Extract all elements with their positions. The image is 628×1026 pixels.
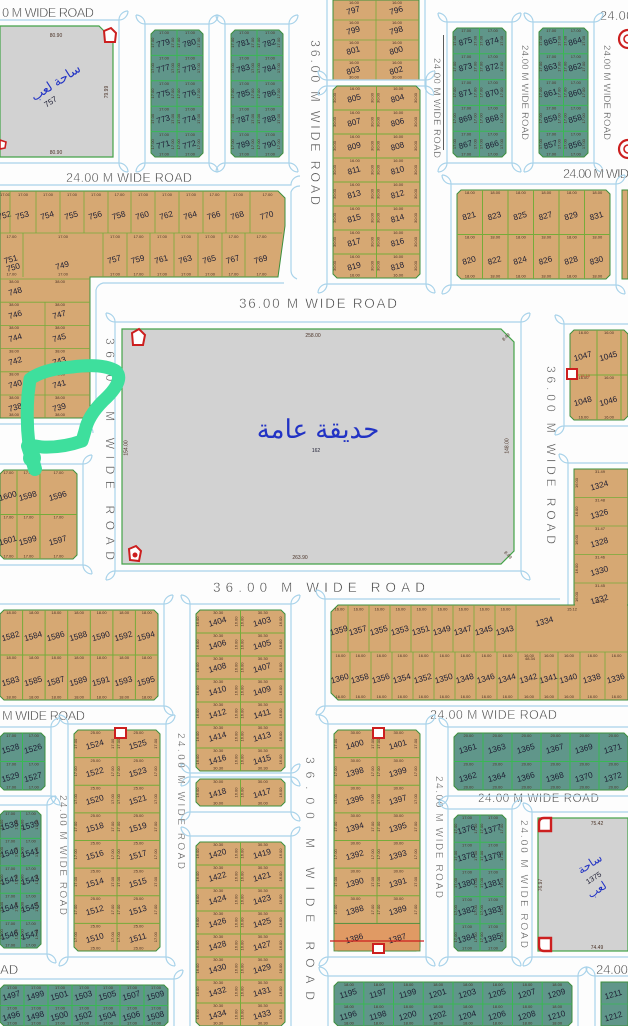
svg-text:17.00: 17.00 [26,839,37,844]
svg-text:17.00: 17.00 [185,132,196,137]
svg-text:20.00: 20.00 [492,733,503,738]
svg-text:17.00: 17.00 [239,106,250,111]
svg-text:17.00: 17.00 [239,132,250,137]
svg-text:17.00: 17.00 [265,152,276,157]
svg-text:16.00: 16.00 [574,534,579,545]
svg-text:25.00: 25.00 [133,786,144,791]
svg-text:17.00: 17.00 [31,985,42,990]
svg-text:17.00: 17.00 [488,28,499,33]
svg-text:18.00: 18.00 [374,1021,385,1026]
svg-text:30.00: 30.00 [393,896,404,901]
svg-text:16.00: 16.00 [195,963,200,974]
svg-text:18.00: 18.00 [516,274,527,279]
svg-text:18.00: 18.00 [516,235,527,240]
svg-text:17.00: 17.00 [557,138,562,149]
svg-text:16.00: 16.00 [350,110,361,115]
svg-text:30.00: 30.00 [376,212,381,223]
svg-text:17.00: 17.00 [462,815,473,820]
svg-text:16.00: 16.00 [350,158,361,163]
svg-text:30.30: 30.30 [258,656,269,661]
svg-text:17.00: 17.00 [0,846,4,857]
svg-text:17.00: 17.00 [150,88,155,99]
svg-text:17.00: 17.00 [196,139,201,150]
svg-text:17.00: 17.00 [153,849,158,860]
svg-text:30.30: 30.30 [213,679,224,684]
svg-text:17.00: 17.00 [73,904,78,915]
svg-text:17.00: 17.00 [370,821,375,832]
svg-text:17.00: 17.00 [6,733,17,738]
svg-text:18.00: 18.00 [433,1021,444,1026]
svg-text:18.00: 18.00 [493,1021,504,1026]
svg-text:17.00: 17.00 [256,234,267,239]
svg-text:16.00: 16.00 [240,986,245,997]
svg-text:17.00: 17.00 [116,931,121,942]
svg-text:17.00: 17.00 [170,88,175,99]
svg-text:17.00: 17.00 [488,131,499,136]
svg-text:17.00: 17.00 [546,80,557,85]
svg-text:16.00: 16.00 [240,940,245,951]
svg-text:17.00: 17.00 [185,106,196,111]
svg-text:17.00: 17.00 [461,106,472,111]
svg-text:30.30: 30.30 [213,842,224,847]
svg-text:17.00: 17.00 [153,821,158,832]
svg-text:16.00: 16.00 [524,694,535,699]
svg-text:17.00: 17.00 [488,815,499,820]
svg-text:17.00: 17.00 [185,81,196,86]
svg-text:17.00: 17.00 [546,106,557,111]
svg-text:20.00: 20.00 [579,762,590,767]
svg-text:30.00: 30.00 [413,116,418,127]
svg-text:30.30: 30.30 [258,842,269,847]
svg-text:25.00: 25.00 [90,946,101,951]
svg-text:16.00: 16.00 [349,60,360,65]
svg-text:17.00: 17.00 [581,35,586,46]
svg-text:17.00: 17.00 [473,61,478,72]
svg-text:17.00: 17.00 [153,931,158,942]
svg-text:17.00: 17.00 [499,138,504,149]
svg-text:20.00: 20.00 [579,785,590,790]
svg-text:30.30: 30.30 [258,911,269,916]
svg-text:18.00: 18.00 [522,1021,533,1026]
svg-text:25.00: 25.00 [133,813,144,818]
svg-text:17.00: 17.00 [34,929,39,940]
svg-text:17.00: 17.00 [14,874,19,885]
svg-text:17.00: 17.00 [453,877,458,888]
svg-text:17.00: 17.00 [376,876,381,887]
svg-text:17.00: 17.00 [176,113,181,124]
svg-text:30.30: 30.30 [258,766,269,771]
svg-text:17.00: 17.00 [159,152,170,157]
svg-text:16.00: 16.00 [335,653,346,658]
svg-text:20.00: 20.00 [608,762,619,767]
svg-text:18.00: 18.00 [493,982,504,987]
svg-text:17.00: 17.00 [67,192,78,197]
svg-text:30.30: 30.30 [258,980,269,985]
svg-text:16.00: 16.00 [481,694,492,699]
svg-text:17.00: 17.00 [563,35,568,46]
svg-text:20.00: 20.00 [579,733,590,738]
svg-text:17.00: 17.00 [150,113,155,124]
svg-text:17.00: 17.00 [333,738,338,749]
svg-text:17.00: 17.00 [262,192,273,197]
svg-text:25.00: 25.00 [133,896,144,901]
svg-text:18.00: 18.00 [552,1021,563,1026]
svg-text:17.00: 17.00 [376,904,381,915]
svg-text:17.00: 17.00 [452,138,457,149]
svg-text:17.00: 17.00 [479,904,484,915]
svg-text:16.00: 16.00 [564,694,575,699]
svg-text:17.00: 17.00 [14,819,19,830]
svg-text:24.00 M WIDE ROAD: 24.00 M WIDE ROAD [430,708,557,722]
svg-text:17.00: 17.00 [488,842,499,847]
svg-text:17.00: 17.00 [453,823,458,834]
svg-text:17.00: 17.00 [0,901,4,912]
svg-text:25.00: 25.00 [90,786,101,791]
svg-text:16.00: 16.00 [355,653,366,658]
svg-text:17.00: 17.00 [250,139,255,150]
svg-text:17.00: 17.00 [239,81,250,86]
svg-text:17.00: 17.00 [110,849,115,860]
svg-text:17.00: 17.00 [376,738,381,749]
svg-text:38.00: 38.00 [9,412,20,417]
svg-text:30.30: 30.30 [213,911,224,916]
svg-text:17.00: 17.00 [413,849,418,860]
svg-text:30.30: 30.30 [258,1003,269,1008]
svg-text:17.00: 17.00 [110,904,115,915]
svg-text:17.00: 17.00 [157,272,168,277]
svg-text:17.00: 17.00 [256,113,261,124]
svg-text:30.00: 30.00 [393,758,404,763]
svg-text:38.00: 38.00 [9,395,20,400]
svg-text:17.00: 17.00 [150,62,155,73]
svg-text:17.00: 17.00 [20,929,25,940]
svg-text:18.00: 18.00 [552,982,563,987]
svg-text:17.00: 17.00 [185,152,196,157]
svg-text:17.00: 17.00 [265,30,276,35]
svg-text:25.00: 25.00 [133,730,144,735]
svg-text:20.00: 20.00 [608,733,619,738]
svg-text:17.00: 17.00 [546,28,557,33]
svg-text:17.00: 17.00 [31,1021,42,1026]
svg-text:17.00: 17.00 [461,28,472,33]
svg-text:30.00: 30.00 [413,164,418,175]
svg-text:17.00: 17.00 [5,811,16,816]
svg-text:30.30: 30.30 [258,679,269,684]
svg-text:17.00: 17.00 [73,793,78,804]
svg-text:17.00: 17.00 [461,131,472,136]
svg-text:17.00: 17.00 [571,54,582,59]
svg-text:17.00: 17.00 [116,904,121,915]
svg-text:16.00: 16.00 [278,731,283,742]
svg-text:17.00: 17.00 [73,876,78,887]
svg-text:17.00: 17.00 [453,850,458,861]
svg-text:17.00: 17.00 [3,470,14,475]
svg-text:17.00: 17.00 [170,139,175,150]
svg-text:17.00: 17.00 [176,139,181,150]
svg-text:16.00: 16.00 [240,708,245,719]
svg-text:17.00: 17.00 [153,766,158,777]
svg-text:18.00: 18.00 [51,695,62,700]
svg-text:20.00: 20.00 [463,762,474,767]
svg-text:17.00: 17.00 [488,897,499,902]
svg-text:17.00: 17.00 [563,113,568,124]
svg-text:18.00: 18.00 [592,190,603,195]
svg-text:148.00: 148.00 [505,438,511,454]
svg-text:18.00: 18.00 [51,610,62,615]
svg-text:30.00: 30.00 [350,813,361,818]
svg-text:16.00: 16.00 [350,273,361,278]
svg-text:18.00: 18.00 [344,1021,355,1026]
svg-text:16.00: 16.00 [397,694,408,699]
svg-text:17.00: 17.00 [196,113,201,124]
svg-text:17.00: 17.00 [546,152,557,157]
svg-text:16.00: 16.00 [195,754,200,765]
svg-text:16.00: 16.00 [278,986,283,997]
svg-text:18.00: 18.00 [465,190,476,195]
svg-text:30.00: 30.00 [332,188,337,199]
svg-text:16.00: 16.00 [392,40,403,45]
svg-text:17.00: 17.00 [7,1021,18,1026]
svg-text:30.00: 30.00 [393,868,404,873]
svg-text:17.00: 17.00 [452,87,457,98]
svg-text:17.00: 17.00 [170,113,175,124]
svg-text:16.00: 16.00 [439,694,450,699]
svg-text:17.00: 17.00 [157,234,168,239]
svg-text:17.00: 17.00 [162,192,173,197]
svg-text:17.00: 17.00 [73,821,78,832]
svg-text:30.00: 30.00 [332,140,337,151]
svg-text:16.00: 16.00 [604,330,615,335]
svg-text:16.00: 16.00 [460,653,471,658]
svg-text:18.00: 18.00 [142,695,153,700]
svg-text:16.00: 16.00 [240,616,245,627]
svg-text:30.30: 30.30 [213,633,224,638]
svg-text:17.00: 17.00 [250,88,255,99]
svg-text:17.00: 17.00 [185,30,196,35]
svg-text:17.00: 17.00 [20,846,25,857]
svg-text:17.00: 17.00 [413,738,418,749]
svg-text:17.00: 17.00 [452,113,457,124]
svg-text:17.00: 17.00 [376,793,381,804]
svg-text:16.00: 16.00 [234,894,239,905]
svg-text:20.00: 20.00 [463,733,474,738]
svg-text:17.00: 17.00 [479,823,484,834]
svg-text:17.00: 17.00 [110,272,121,277]
svg-text:36.00 M WIDE ROAD: 36.00 M WIDE ROAD [308,40,322,205]
svg-text:16.00: 16.00 [392,0,403,5]
svg-text:18.00: 18.00 [119,655,130,660]
svg-text:20.00: 20.00 [521,733,532,738]
svg-text:16.00: 16.00 [278,848,283,859]
svg-text:18.00: 18.00 [433,1004,444,1009]
svg-text:38.00: 38.00 [9,372,20,377]
svg-text:17.00: 17.00 [376,821,381,832]
svg-text:16.00: 16.00 [587,653,598,658]
svg-text:76.97: 76.97 [538,879,544,892]
svg-text:30.00: 30.00 [370,236,375,247]
svg-text:17.00: 17.00 [34,874,39,885]
svg-text:30.00: 30.00 [332,236,337,247]
svg-text:16.00: 16.00 [460,694,471,699]
svg-text:18.00: 18.00 [403,1004,414,1009]
svg-text:30.00: 30.00 [258,779,269,784]
svg-text:17.00: 17.00 [462,842,473,847]
svg-text:18.00: 18.00 [29,610,40,615]
svg-text:17.00: 17.00 [196,88,201,99]
svg-text:17.00: 17.00 [181,272,192,277]
svg-text:30.30: 30.30 [213,748,224,753]
svg-text:30.30: 30.30 [213,934,224,939]
svg-text:18.00: 18.00 [567,235,578,240]
svg-text:18.00: 18.00 [403,1021,414,1026]
svg-text:17.00: 17.00 [413,766,418,777]
svg-text:30.00: 30.00 [376,92,381,103]
svg-text:17.00: 17.00 [181,234,192,239]
svg-text:17.00: 17.00 [479,61,484,72]
svg-text:75.42: 75.42 [591,821,604,827]
svg-text:17.00: 17.00 [538,113,543,124]
svg-text:17.00: 17.00 [557,61,562,72]
svg-text:17.00: 17.00 [413,821,418,832]
svg-text:16.00: 16.00 [374,607,385,612]
svg-text:17.00: 17.00 [73,849,78,860]
svg-text:17.00: 17.00 [14,901,19,912]
svg-text:17.00: 17.00 [563,138,568,149]
svg-text:20.00: 20.00 [550,733,561,738]
svg-text:30.30: 30.30 [213,1021,224,1026]
svg-text:17.00: 17.00 [5,866,16,871]
svg-text:18.00: 18.00 [74,695,85,700]
svg-text:18.00: 18.00 [97,695,108,700]
svg-text:16.00: 16.00 [439,653,450,658]
svg-text:16.00: 16.00 [611,694,622,699]
svg-text:17.00: 17.00 [110,876,115,887]
svg-text:18.00: 18.00 [541,235,552,240]
svg-text:16.00: 16.00 [195,1009,200,1020]
svg-text:17.00: 17.00 [462,924,473,929]
svg-text:17.00: 17.00 [571,106,582,111]
svg-text:24.00 M WIDE ROAD: 24.00 M WIDE ROAD [66,171,192,185]
svg-text:0 M WIDE ROAD: 0 M WIDE ROAD [2,5,94,20]
svg-text:17.00: 17.00 [571,131,582,136]
svg-text:17.00: 17.00 [20,874,25,885]
svg-text:17.00: 17.00 [3,515,14,520]
svg-text:16.00: 16.00 [392,60,403,65]
svg-text:18.00: 18.00 [29,655,40,660]
svg-text:16.00: 16.00 [502,653,513,658]
svg-text:16.00: 16.00 [234,616,239,627]
svg-text:17.00: 17.00 [14,929,19,940]
svg-text:16.00: 16.00 [393,158,404,163]
svg-text:17.00: 17.00 [370,766,375,777]
svg-text:16.00: 16.00 [278,754,283,765]
svg-text:17.00: 17.00 [6,762,17,767]
svg-text:17.00: 17.00 [110,931,115,942]
svg-text:30.00: 30.00 [213,779,224,784]
svg-text:17.00: 17.00 [461,54,472,59]
svg-text:30.00: 30.00 [349,75,360,80]
svg-text:38.00: 38.00 [55,302,66,307]
svg-text:30.30: 30.30 [258,725,269,730]
svg-text:30.00: 30.00 [413,212,418,223]
svg-text:48.34: 48.34 [525,656,536,661]
svg-text:17.00: 17.00 [333,766,338,777]
svg-text:25.00: 25.00 [90,841,101,846]
svg-text:16.00: 16.00 [278,616,283,627]
svg-text:17.00: 17.00 [29,762,40,767]
svg-text:16.00: 16.00 [350,206,361,211]
svg-text:17.00: 17.00 [499,932,504,943]
svg-text:17.00: 17.00 [228,234,239,239]
svg-text:17.00: 17.00 [473,823,478,834]
svg-text:17.00: 17.00 [499,877,504,888]
svg-text:17.00: 17.00 [116,793,121,804]
svg-text:17.00: 17.00 [151,1021,162,1026]
svg-text:17.00: 17.00 [153,876,158,887]
svg-text:25.00: 25.00 [90,924,101,929]
svg-text:17.00: 17.00 [479,35,484,46]
svg-text:17.00: 17.00 [230,88,235,99]
svg-text:17.00: 17.00 [479,850,484,861]
svg-text:17.00: 17.00 [499,113,504,124]
svg-text:16.00: 16.00 [234,639,239,650]
svg-text:17.00: 17.00 [473,877,478,888]
svg-text:16.00: 16.00 [278,685,283,696]
svg-text:30.30: 30.30 [258,957,269,962]
svg-text:31.48: 31.48 [595,498,606,503]
svg-text:16.00: 16.00 [240,963,245,974]
svg-text:17.00: 17.00 [488,946,499,951]
svg-text:17.00: 17.00 [5,921,16,926]
svg-text:17.00: 17.00 [488,870,499,875]
svg-text:38.00: 38.00 [55,395,66,400]
svg-text:16.00: 16.00 [195,871,200,882]
svg-text:30.00: 30.00 [376,236,381,247]
svg-text:17.00: 17.00 [110,766,115,777]
svg-text:17.00: 17.00 [150,139,155,150]
svg-text:17.00: 17.00 [159,30,170,35]
svg-text:17.00: 17.00 [176,88,181,99]
svg-text:25.00: 25.00 [90,758,101,763]
svg-text:17.00: 17.00 [185,56,196,61]
svg-text:17.00: 17.00 [159,106,170,111]
svg-text:M WIDE ROAD: M WIDE ROAD [2,708,85,723]
svg-text:17.00: 17.00 [116,766,121,777]
svg-text:17.00: 17.00 [150,37,155,48]
svg-text:17.00: 17.00 [159,132,170,137]
svg-text:17.00: 17.00 [563,61,568,72]
svg-text:20.00: 20.00 [550,762,561,767]
svg-text:17.00: 17.00 [73,766,78,777]
svg-text:17.00: 17.00 [370,904,375,915]
svg-text:17.00: 17.00 [228,272,239,277]
svg-text:17.00: 17.00 [571,28,582,33]
svg-text:80.90: 80.90 [50,33,63,39]
svg-text:17.00: 17.00 [462,946,473,951]
svg-text:18.00: 18.00 [374,982,385,987]
svg-text:16.00: 16.00 [393,230,404,235]
svg-text:17.00: 17.00 [170,37,175,48]
svg-text:17.00: 17.00 [230,113,235,124]
svg-text:16.00: 16.00 [578,415,589,420]
svg-text:16.00: 16.00 [350,254,361,259]
svg-text:30.30: 30.30 [258,888,269,893]
svg-text:17.00: 17.00 [43,192,54,197]
svg-text:18.00: 18.00 [541,274,552,279]
svg-text:17.00: 17.00 [114,192,125,197]
svg-text:17.00: 17.00 [153,738,158,749]
svg-text:18.00: 18.00 [119,610,130,615]
